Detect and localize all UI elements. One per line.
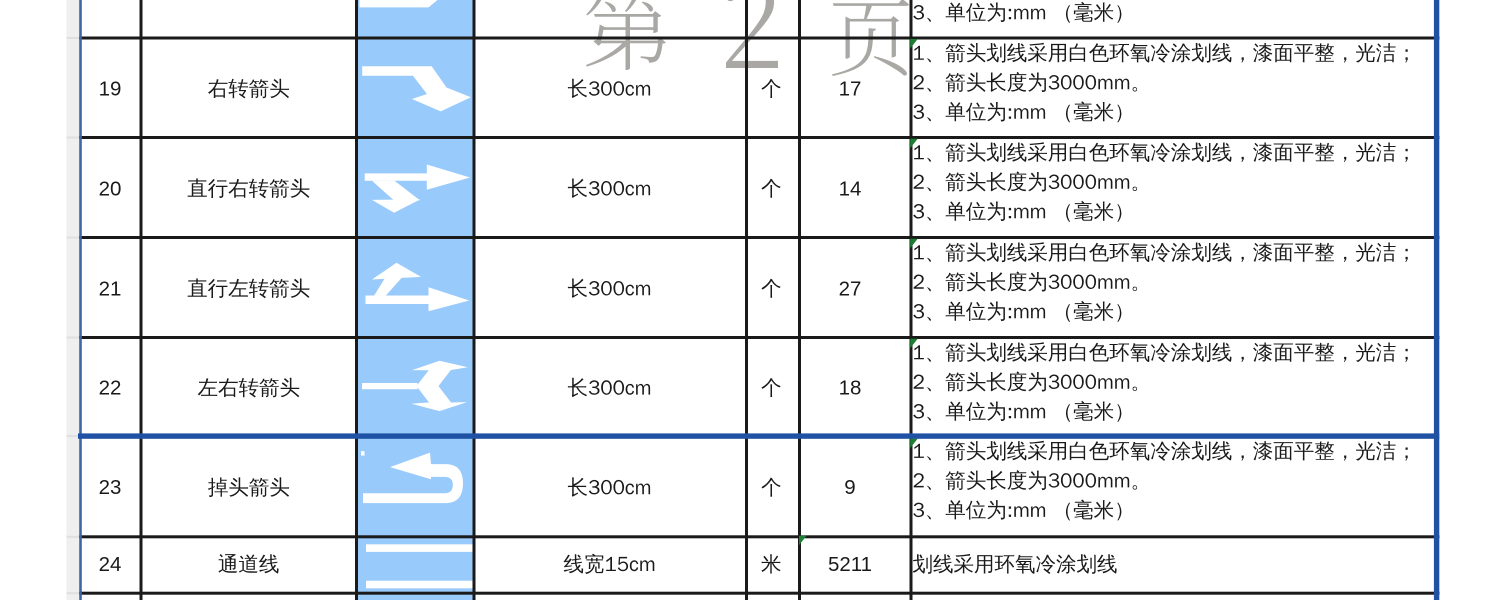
svg-text:17: 17 (839, 78, 862, 101)
svg-text:24: 24 (99, 553, 122, 576)
svg-text:22: 22 (99, 377, 122, 400)
svg-text:14: 14 (839, 177, 862, 200)
svg-text:23: 23 (99, 476, 122, 499)
svg-text:27: 27 (839, 277, 862, 300)
svg-text:9: 9 (844, 476, 855, 499)
svg-text:19: 19 (99, 78, 122, 101)
svg-text:21: 21 (99, 277, 122, 300)
svg-text:5211: 5211 (828, 553, 872, 576)
svg-text:20: 20 (99, 177, 122, 200)
svg-text:18: 18 (839, 377, 862, 400)
